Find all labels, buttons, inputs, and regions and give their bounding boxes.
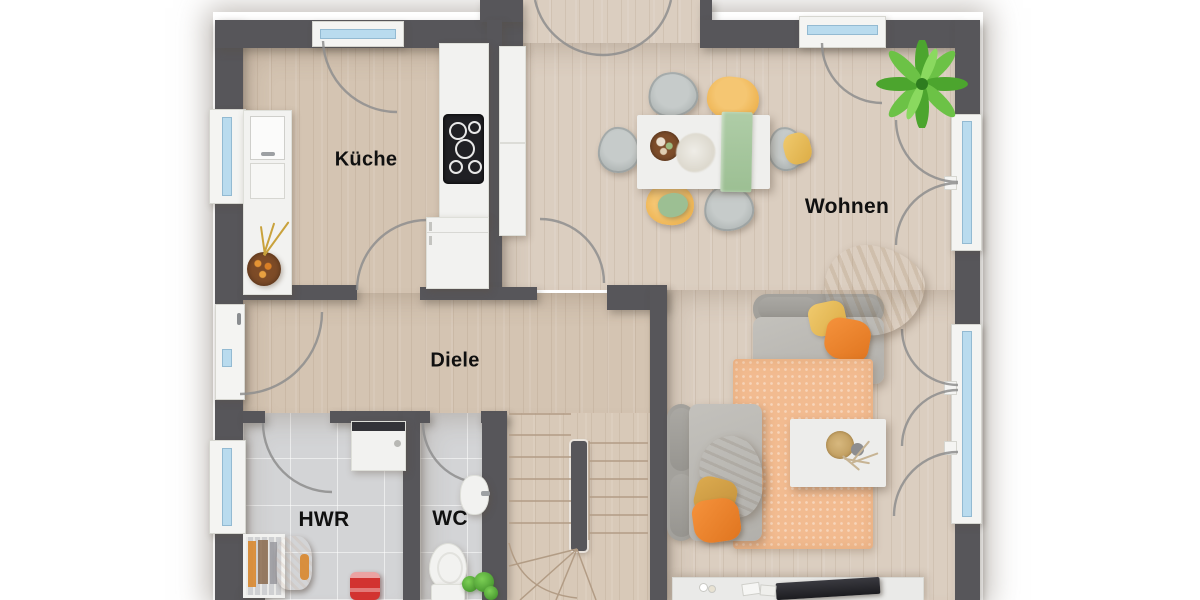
backpack [276,536,312,590]
kitchen-faucet [261,152,275,156]
table-runner [720,112,752,193]
palm-plant [876,40,968,128]
kitchen-sink-basin [250,163,285,199]
room-label-wc: WC [432,507,468,531]
decor-candle [699,583,708,592]
door-swing-arc [540,219,604,283]
decor-candle [708,585,716,593]
toilet-tank [431,584,465,600]
floor-plan: Küche Wohnen Diele HWR WC [0,0,1200,600]
decor-books [760,584,777,596]
room-label-hwr: HWR [298,508,349,532]
door-swing-arc [535,0,603,55]
burner [449,160,463,174]
door-swing-arc [902,329,958,385]
door-swing-arc [896,120,958,182]
decor-tray [826,431,854,459]
door-swing-arc [822,43,882,103]
pillow-orange [690,496,743,545]
fruit-bowl [247,252,281,286]
room-label-wohnen: Wohnen [805,195,889,219]
door-swing-arc [323,41,397,112]
room-label-kueche: Küche [335,149,398,172]
door-swing-arc [894,452,958,516]
door-swing-arc [263,423,332,492]
door-swing-arc [357,220,427,290]
door-swing-arc [902,390,958,446]
plan-linework [0,0,1200,600]
fridge [426,217,489,289]
wc-plant [484,586,498,600]
tall-cabinet [499,46,526,236]
door-swing-arc [603,0,671,55]
washing-machine [351,421,406,471]
centerpiece-flowers [676,133,716,173]
door-swing-arc [896,183,958,245]
stairs-treads [509,414,648,600]
door-swing-arc [240,312,322,394]
burner [468,160,482,174]
burner [449,122,467,140]
toy-truck [350,572,380,600]
burner [468,121,481,134]
decor-books [741,582,760,596]
burner [455,139,475,159]
door-swing-arc [423,423,483,483]
room-label-diele: Diele [430,350,479,373]
